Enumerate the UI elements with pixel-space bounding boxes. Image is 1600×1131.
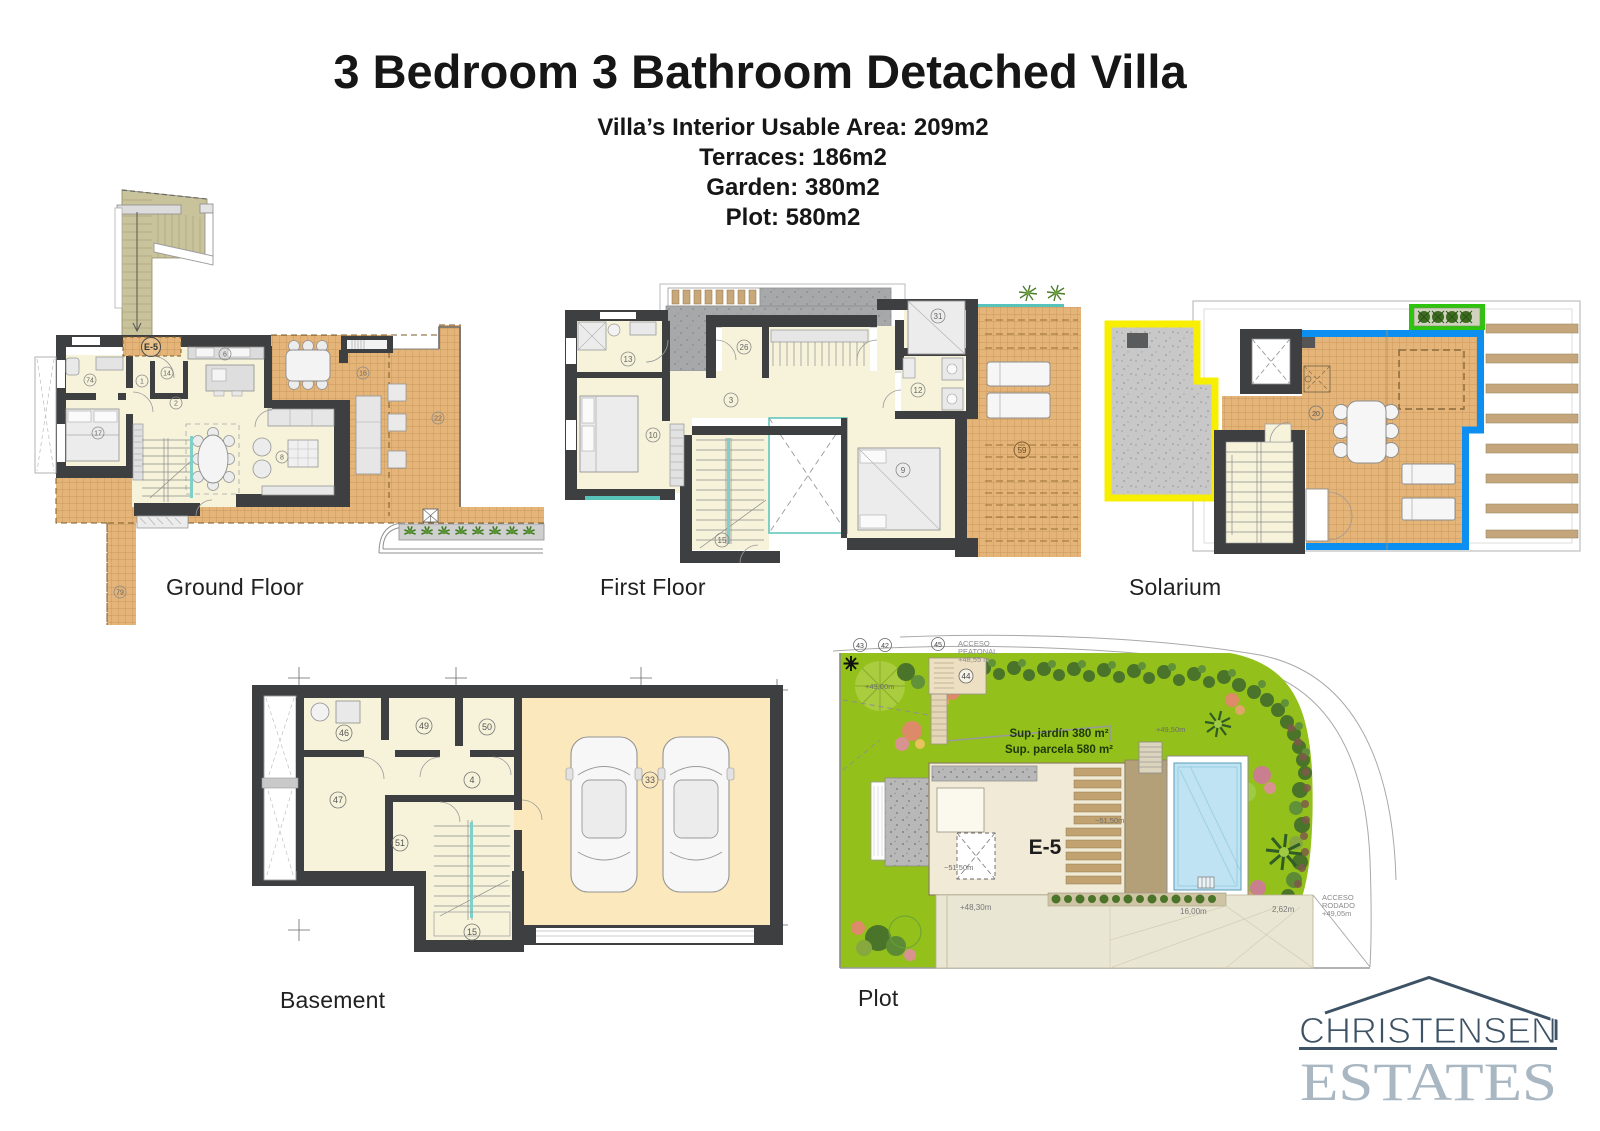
svg-text:45: 45	[934, 642, 942, 649]
svg-text:51: 51	[395, 838, 405, 848]
svg-text:2: 2	[174, 401, 178, 408]
svg-text:9: 9	[901, 466, 906, 475]
svg-text:59: 59	[1018, 446, 1027, 455]
svg-text:20: 20	[1312, 411, 1320, 418]
svg-text:+48,30m: +48,30m	[960, 903, 992, 912]
svg-text:1: 1	[140, 379, 144, 386]
svg-text:15: 15	[467, 927, 477, 937]
svg-text:44: 44	[962, 672, 971, 681]
svg-text:42: 42	[881, 643, 889, 650]
svg-text:74: 74	[86, 378, 94, 385]
svg-text:2,62m: 2,62m	[1272, 905, 1295, 914]
svg-text:4: 4	[469, 775, 474, 785]
svg-text:6: 6	[223, 352, 227, 359]
svg-text:79: 79	[116, 590, 124, 597]
svg-text:26: 26	[740, 343, 749, 352]
svg-text:22: 22	[434, 416, 442, 423]
svg-text:17: 17	[94, 431, 102, 438]
svg-text:3: 3	[729, 396, 734, 405]
svg-text:14: 14	[163, 371, 171, 378]
svg-text:31: 31	[934, 312, 943, 321]
svg-text:13: 13	[624, 355, 633, 364]
svg-text:+49,00m: +49,00m	[865, 682, 894, 691]
svg-text:+48,55 m: +48,55 m	[958, 655, 989, 664]
svg-text:+49,50m: +49,50m	[1156, 725, 1185, 734]
svg-text:~51,50m: ~51,50m	[1095, 816, 1124, 825]
svg-text:16: 16	[359, 371, 367, 378]
svg-text:16,00m: 16,00m	[1180, 907, 1207, 916]
svg-text:33: 33	[645, 775, 655, 785]
svg-text:ESTATES: ESTATES	[1300, 1052, 1557, 1112]
svg-text:43: 43	[856, 643, 864, 650]
svg-text:47: 47	[333, 795, 343, 805]
svg-text:Sup. jardín 380 m²: Sup. jardín 380 m²	[1009, 728, 1108, 740]
svg-text:E-5: E-5	[144, 342, 158, 352]
svg-text:8: 8	[280, 455, 284, 462]
svg-text:12: 12	[914, 386, 923, 395]
svg-text:50: 50	[482, 722, 492, 732]
svg-text:15: 15	[718, 536, 727, 545]
svg-text:~51,50m: ~51,50m	[944, 863, 973, 872]
svg-text:CHRISTENSEN: CHRISTENSEN	[1299, 1010, 1557, 1051]
svg-text:+49,05m: +49,05m	[1322, 909, 1351, 918]
svg-text:E-5: E-5	[1029, 836, 1062, 859]
svg-text:10: 10	[649, 431, 658, 440]
svg-text:Sup. parcela 580 m²: Sup. parcela 580 m²	[1005, 744, 1113, 756]
svg-text:49: 49	[419, 721, 429, 731]
svg-text:46: 46	[339, 728, 349, 738]
